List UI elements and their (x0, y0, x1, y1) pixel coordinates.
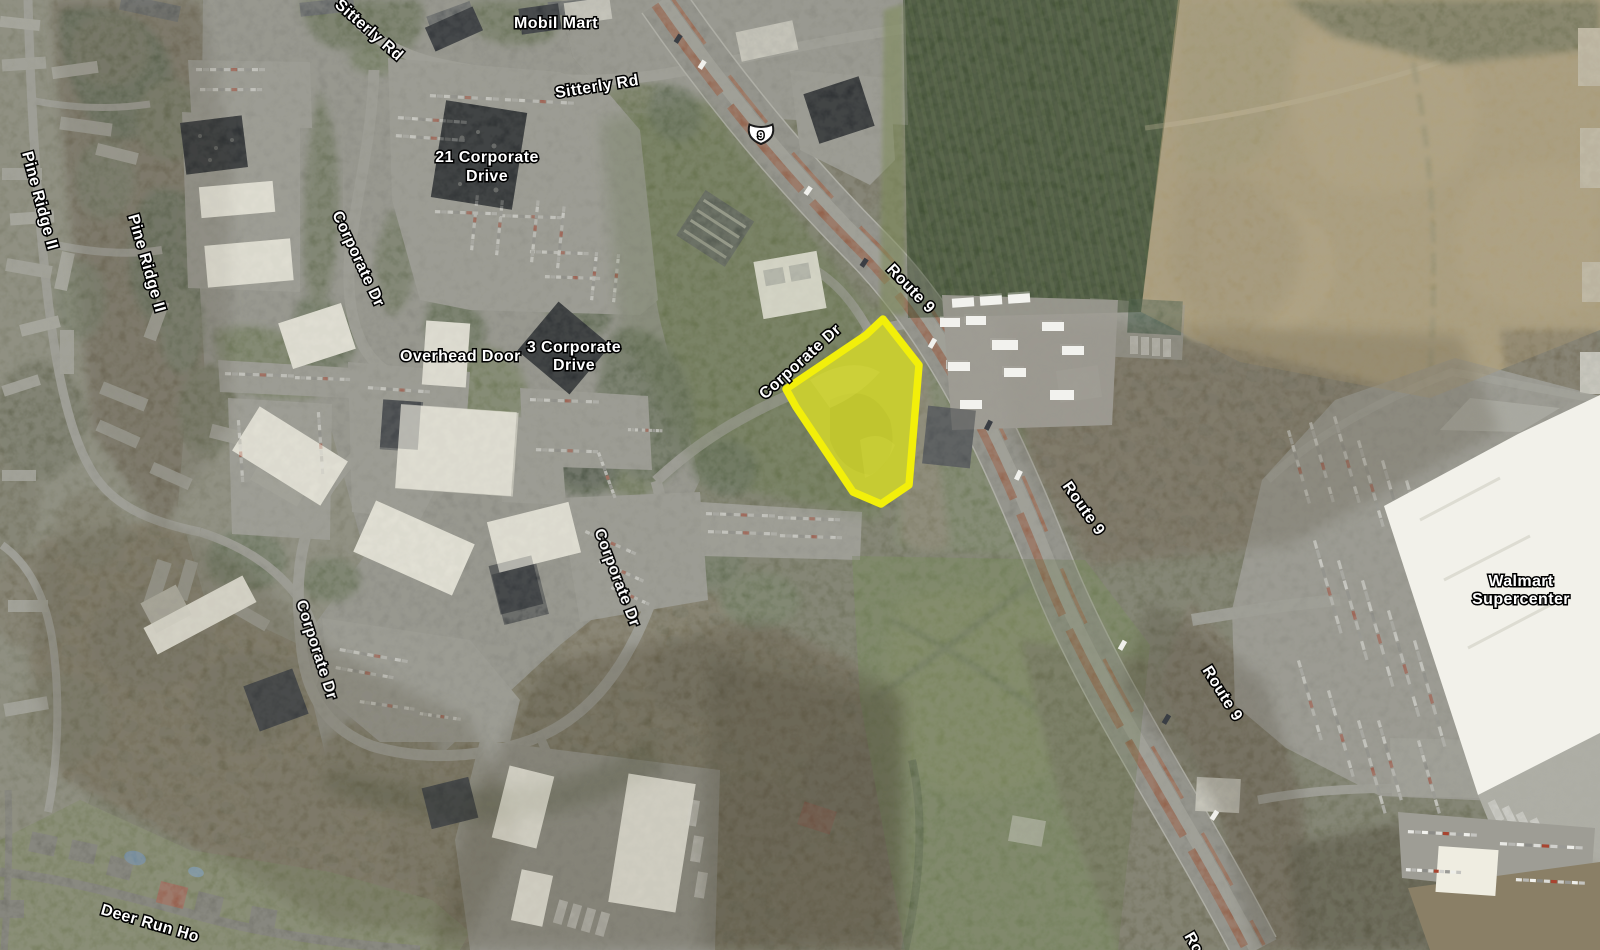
svg-text:Drive: Drive (466, 168, 508, 185)
svg-text:Overhead Door: Overhead Door (400, 348, 521, 365)
svg-text:Supercenter: Supercenter (1472, 591, 1570, 608)
svg-text:9: 9 (758, 130, 765, 142)
svg-text:Drive: Drive (553, 357, 595, 374)
svg-text:3 Corporate: 3 Corporate (527, 339, 621, 356)
svg-text:21 Corporate: 21 Corporate (435, 149, 539, 166)
svg-text:Mobil Mart: Mobil Mart (514, 15, 598, 32)
svg-text:Walmart: Walmart (1488, 573, 1554, 590)
